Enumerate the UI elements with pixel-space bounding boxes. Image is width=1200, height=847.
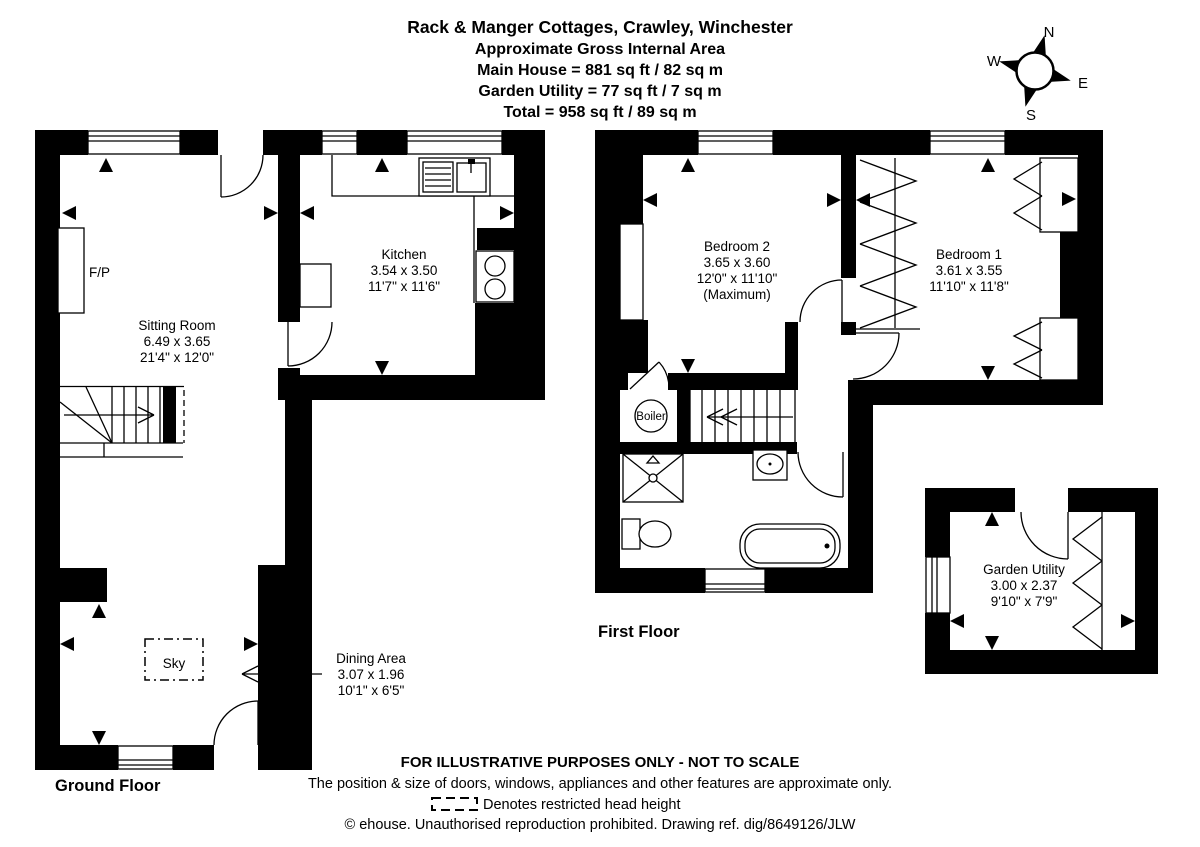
footer-copyright: © ehouse. Unauthorised reproduction proh… (345, 817, 856, 833)
compass-circle (1017, 53, 1054, 90)
shower (623, 454, 683, 502)
bedroom1-imperial: 11'10" x 11'8" (929, 279, 1009, 294)
bedroom1-name: Bedroom 1 (936, 247, 1002, 262)
footer-legend-text: Denotes restricted head height (483, 797, 681, 813)
kitchen-metric: 3.54 x 3.50 (371, 263, 438, 278)
restricted-head-height-legend-icon (432, 798, 477, 810)
header: Rack & Manger Cottages, Crawley, Winches… (407, 17, 793, 121)
toilet (622, 519, 671, 549)
footer: FOR ILLUSTRATIVE PURPOSES ONLY - NOT TO … (308, 754, 892, 833)
compass-south-label: S (1026, 107, 1036, 124)
header-subtitle: Approximate Gross Internal Area (475, 41, 725, 58)
sitting-room-metric: 6.49 x 3.65 (144, 334, 211, 349)
fireplace-label: F/P (89, 265, 110, 280)
kitchen-label: Kitchen 3.54 x 3.50 11'7" x 11'6" (368, 247, 440, 294)
bedroom2-label: Bedroom 2 3.65 x 3.60 12'0" x 11'10" (Ma… (697, 239, 778, 302)
garden-utility-label: Garden Utility 3.00 x 2.37 9'10" x 7'9" (983, 562, 1065, 609)
header-area-main: Main House = 881 sq ft / 82 sq m (477, 62, 723, 79)
garden-utility-name: Garden Utility (983, 562, 1065, 577)
bedroom2-note: (Maximum) (703, 287, 771, 302)
sitting-room-window (88, 131, 180, 154)
kitchen-door (288, 322, 332, 366)
bedroom2-metric: 3.65 x 3.60 (704, 255, 771, 270)
kitchen-imperial: 11'7" x 11'6" (368, 279, 440, 294)
footer-disclaimer-title: FOR ILLUSTRATIVE PURPOSES ONLY - NOT TO … (401, 754, 800, 771)
first-floor-walls (595, 130, 1103, 593)
garden-utility-wardrobe (1073, 512, 1102, 650)
bedroom2-door (800, 280, 842, 322)
garden-utility-metric: 3.00 x 2.37 (991, 578, 1058, 593)
header-area-total: Total = 958 sq ft / 89 sq m (503, 104, 696, 121)
bathroom-fixtures (622, 450, 840, 568)
kitchen-window (407, 131, 502, 154)
sitting-room-imperial: 21'4" x 12'0" (140, 350, 214, 365)
page-title: Rack & Manger Cottages, Crawley, Winches… (407, 17, 793, 37)
kitchen-hob (476, 251, 514, 302)
bedroom1-label: Bedroom 1 3.61 x 3.55 11'10" x 11'8" (929, 247, 1009, 294)
bathtub (740, 524, 840, 568)
header-area-garden: Garden Utility = 77 sq ft / 7 sq m (478, 83, 721, 100)
ground-floor-plan: F/P Sky Sitting Room 6.49 x 3.65 21'4" x… (35, 130, 545, 795)
compass-west-label: W (987, 53, 1002, 70)
stairs-up-arrow (64, 407, 154, 423)
staircase-first (690, 390, 795, 442)
garden-utility-imperial: 9'10" x 7'9" (991, 594, 1058, 609)
floorplan-page: Rack & Manger Cottages, Crawley, Winches… (0, 0, 1200, 847)
kitchen-unit (300, 264, 331, 307)
garden-utility-door (1021, 512, 1068, 559)
bedroom2-name: Bedroom 2 (704, 239, 770, 254)
compass-rose: N W E S (987, 24, 1088, 124)
dining-window (118, 746, 173, 769)
footer-disclaimer-text: The position & size of doors, windows, a… (308, 776, 892, 792)
kitchen-name: Kitchen (381, 247, 426, 262)
dining-area-imperial: 10'1" x 6'5" (338, 683, 405, 698)
compass-east-label: E (1078, 75, 1088, 92)
bedroom1-metric: 3.61 x 3.55 (936, 263, 1003, 278)
dining-area-metric: 3.07 x 1.96 (338, 667, 405, 682)
staircase-ground (60, 387, 184, 458)
bathroom-door (798, 452, 843, 497)
garden-utility-plan: Garden Utility 3.00 x 2.37 9'10" x 7'9" (925, 488, 1158, 674)
basin (753, 450, 787, 480)
sitting-room-label: Sitting Room 6.49 x 3.65 21'4" x 12'0" (138, 318, 215, 365)
chimney-recess (620, 224, 643, 320)
kitchen-window-small (322, 131, 357, 154)
boiler-door-arc (659, 362, 669, 388)
dining-door (214, 701, 258, 745)
bedroom1-door (853, 333, 899, 379)
floorplan-drawing: Rack & Manger Cottages, Crawley, Winches… (0, 0, 1200, 847)
front-door (221, 155, 263, 197)
fireplace (58, 228, 84, 313)
garden-utility-window (926, 557, 950, 613)
bedroom2-window (698, 131, 773, 154)
first-floor-title: First Floor (598, 623, 680, 641)
bedroom1-window (930, 131, 1005, 154)
boiler-label: Boiler (636, 411, 666, 423)
sitting-room-name: Sitting Room (138, 318, 215, 333)
skylight-label: Sky (163, 656, 186, 671)
kitchen-sink (419, 158, 490, 196)
compass-north-label: N (1044, 24, 1055, 41)
bathroom-window (705, 569, 765, 592)
ground-floor-title: Ground Floor (55, 777, 161, 795)
dining-area-name: Dining Area (336, 651, 406, 666)
bedroom2-imperial: 12'0" x 11'10" (697, 271, 778, 286)
